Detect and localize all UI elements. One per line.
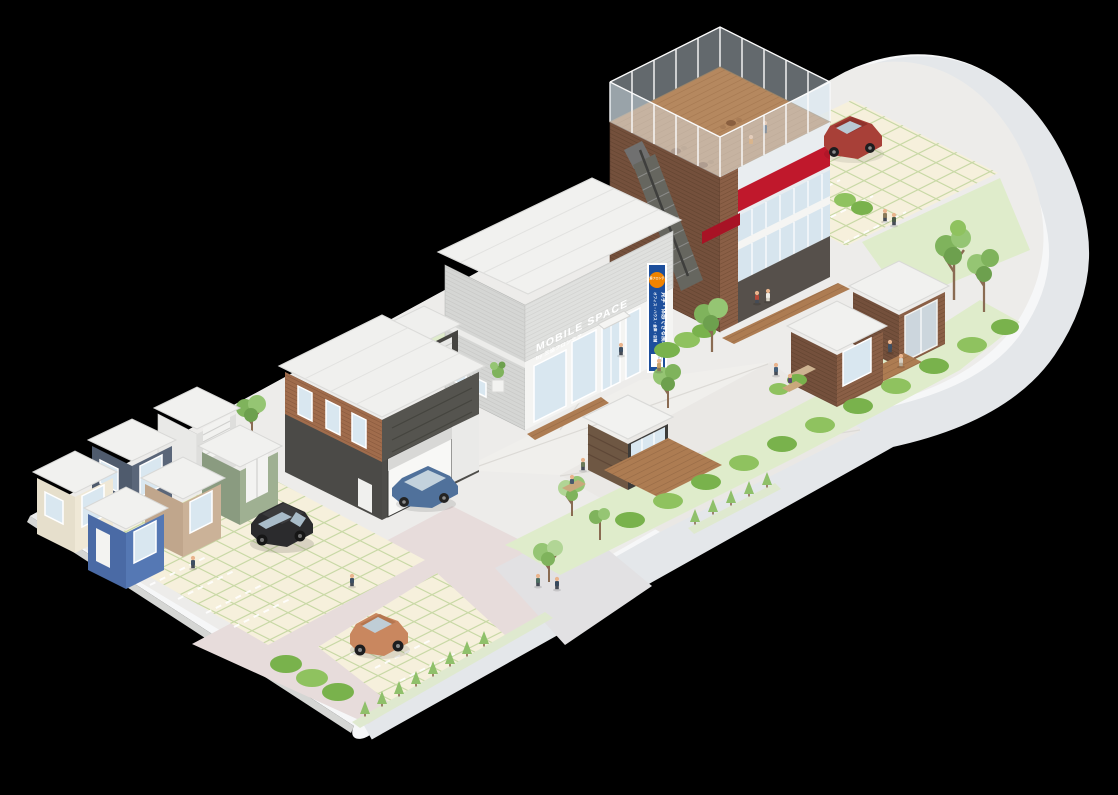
banner-sub-text: オフィス・ハウス・倉庫・店舗 bbox=[653, 292, 658, 343]
isometric-site-map: MOBILE SPACE by 三協フロンテア 三協フロンテア 見学・体感できる… bbox=[0, 0, 1118, 795]
container-unit-blue bbox=[84, 487, 168, 589]
site-illustration: MOBILE SPACE by 三協フロンテア 三協フロンテア 見学・体感できる… bbox=[0, 0, 1118, 795]
banner-badge bbox=[649, 272, 665, 288]
person-seated bbox=[788, 374, 792, 383]
person-seated bbox=[570, 475, 574, 484]
banner-badge-text: 三協フロンテア bbox=[646, 275, 667, 280]
